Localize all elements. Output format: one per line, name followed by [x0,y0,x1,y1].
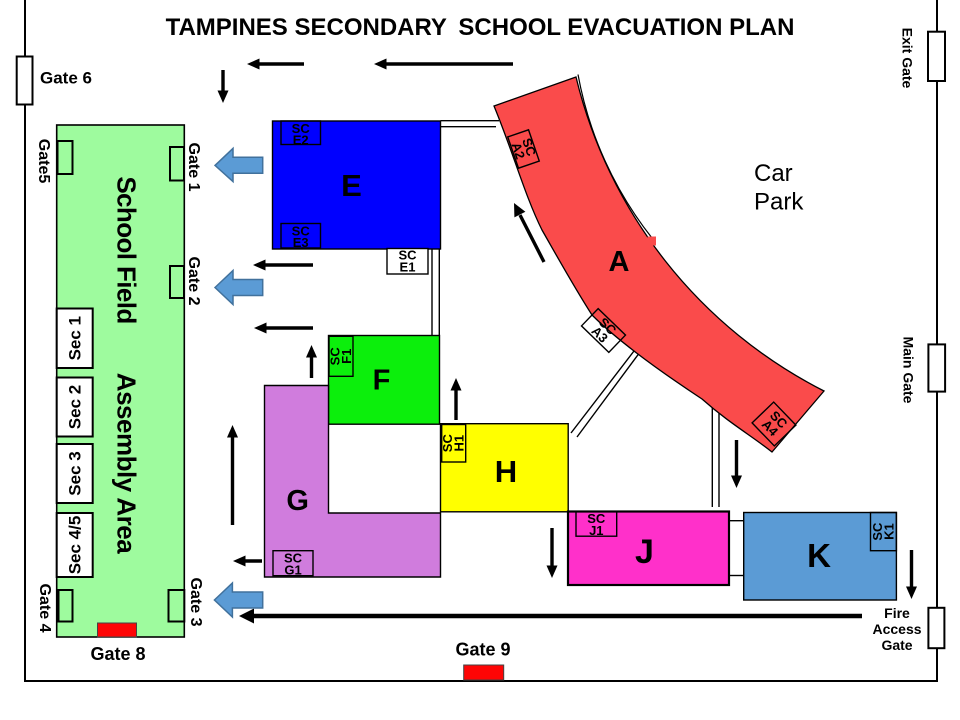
svg-text:Gate 8: Gate 8 [90,644,145,664]
svg-text:Main Gate: Main Gate [901,337,917,404]
svg-text:K: K [807,537,831,574]
svg-text:Gate 1: Gate 1 [185,143,202,192]
svg-text:TAMPINES SECONDARY SCHOOL EVA: TAMPINES SECONDARY SCHOOL EVACUATION PLA… [166,14,795,41]
svg-text:Gate 3: Gate 3 [187,578,204,627]
svg-text:E: E [341,168,362,203]
svg-text:School Field: School Field [112,176,142,323]
svg-text:H: H [495,454,517,489]
svg-text:Park: Park [754,189,804,216]
svg-text:Car: Car [754,160,793,187]
svg-text:E1: E1 [400,260,416,275]
svg-text:F1: F1 [339,349,354,364]
svg-text:J1: J1 [589,523,603,538]
svg-text:Gate 4: Gate 4 [36,584,53,633]
svg-text:Sec 4/5: Sec 4/5 [66,516,85,575]
svg-text:Gate 6: Gate 6 [40,69,92,88]
svg-text:F: F [373,365,391,397]
svg-text:Gate 2: Gate 2 [185,257,202,306]
svg-text:Sec 1: Sec 1 [66,316,85,360]
svg-text:Sec 2: Sec 2 [66,385,85,429]
svg-text:E2: E2 [293,133,309,148]
svg-text:Sec 3: Sec 3 [66,451,85,495]
svg-text:Gate5: Gate5 [35,139,52,184]
svg-text:G: G [286,485,309,517]
svg-text:H1: H1 [452,435,467,452]
svg-text:Fire: Fire [884,605,910,621]
svg-text:E3: E3 [293,235,309,250]
svg-text:Assembly Area: Assembly Area [112,373,142,554]
svg-text:Gate: Gate [881,637,912,653]
svg-text:J: J [635,533,654,571]
svg-text:Gate 9: Gate 9 [455,640,510,660]
svg-text:K1: K1 [881,523,896,540]
svg-text:A: A [609,246,630,278]
svg-text:G1: G1 [284,563,301,578]
svg-text:Exit Gate: Exit Gate [900,28,916,89]
svg-text:Access: Access [872,621,921,637]
